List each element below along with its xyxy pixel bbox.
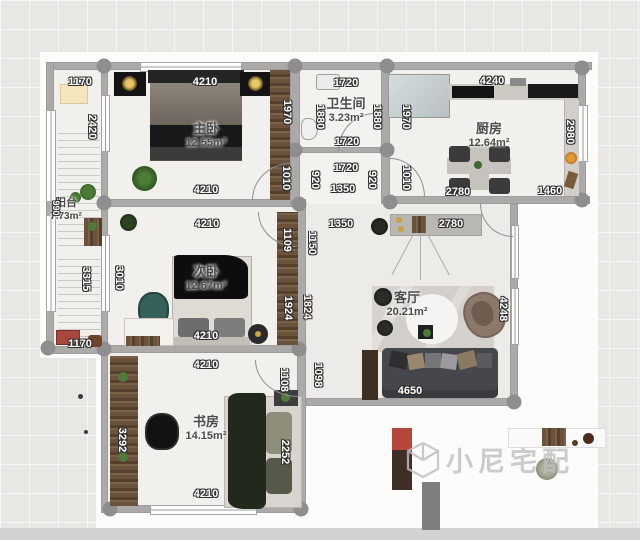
light-ray-2 bbox=[420, 236, 421, 280]
room-area: 12.64m² bbox=[469, 137, 510, 151]
room-name: 书房 bbox=[186, 414, 227, 430]
sofa-pillow-4 bbox=[440, 353, 458, 370]
deco-shelf-bowl bbox=[583, 433, 594, 444]
bottom-shadow-strip bbox=[0, 528, 640, 540]
dimension-label: 1010 bbox=[400, 166, 412, 190]
room-area: 14.15m² bbox=[186, 430, 227, 444]
dimension-label: 920 bbox=[366, 171, 378, 189]
second-dresser bbox=[126, 336, 160, 346]
dimension-label: 1460 bbox=[538, 185, 562, 197]
dimension-label: 4210 bbox=[194, 488, 218, 500]
dimension-label: 4210 bbox=[193, 76, 217, 88]
wall bbox=[306, 398, 518, 406]
dimension-label: 1150 bbox=[306, 231, 318, 255]
dimension-label: 2420 bbox=[86, 115, 98, 139]
wall bbox=[101, 199, 306, 207]
wall-corner-post bbox=[41, 341, 56, 356]
dimension-label: 3292 bbox=[116, 428, 128, 452]
living-plant-1 bbox=[371, 218, 388, 235]
kitchen-sink-icon bbox=[528, 84, 578, 98]
dimension-label: 4248 bbox=[497, 297, 509, 321]
second-bed-pillow-2 bbox=[214, 318, 245, 337]
dimension-label: 1109 bbox=[281, 228, 293, 252]
room-name: 厨房 bbox=[469, 121, 510, 137]
floor-plan-canvas: 1170421017204240172017201350278014604210… bbox=[0, 0, 640, 540]
dining-chair-4 bbox=[489, 178, 510, 194]
window bbox=[511, 288, 519, 345]
dimension-label: 1170 bbox=[68, 76, 92, 88]
wall bbox=[101, 345, 306, 353]
kitchen-glass-counter bbox=[388, 74, 450, 118]
watermark: 小尼宅配 bbox=[406, 440, 574, 479]
dimension-label: 1010 bbox=[280, 166, 292, 190]
tv-cabinet bbox=[362, 350, 378, 400]
dimension-label: 2980 bbox=[564, 120, 576, 144]
wall-corner-post bbox=[292, 197, 307, 212]
room-label: 客厅20.21m² bbox=[387, 290, 428, 320]
watermark-text: 小尼宅配 bbox=[446, 440, 574, 479]
wall-corner-post bbox=[575, 61, 590, 76]
room-label: 卫生间3.23m² bbox=[326, 96, 365, 126]
window bbox=[46, 110, 56, 202]
dimension-label: 1970 bbox=[281, 100, 293, 124]
balcony-rack-texture2 bbox=[58, 255, 100, 337]
wall-corner-post bbox=[507, 395, 522, 410]
room-label: 厨房12.64m² bbox=[469, 121, 510, 151]
sofa-pillow-3 bbox=[425, 353, 441, 368]
room-area: 12.67m² bbox=[186, 280, 227, 294]
dimension-label: 990 bbox=[51, 200, 61, 215]
dimension-label: 4240 bbox=[480, 75, 504, 87]
fruit-bowl-icon bbox=[565, 152, 577, 164]
dimension-label: 2252 bbox=[279, 440, 291, 464]
deco-gray-panel bbox=[422, 482, 440, 530]
dimension-label: 1108 bbox=[278, 368, 290, 392]
wall-corner-post bbox=[97, 59, 112, 74]
window bbox=[46, 215, 56, 312]
dimension-label: 4650 bbox=[398, 385, 422, 397]
dimension-label: 1350 bbox=[331, 183, 355, 195]
wall-corner-post bbox=[380, 59, 395, 74]
kitchen-hood-icon bbox=[510, 78, 526, 86]
dimension-label: 1824 bbox=[301, 295, 313, 319]
watermark-cube-icon bbox=[406, 441, 440, 479]
wall bbox=[46, 62, 592, 70]
study-bed-blanket bbox=[228, 393, 266, 509]
dimension-label: 4210 bbox=[194, 359, 218, 371]
dining-chair-1 bbox=[449, 146, 470, 162]
wall-corner-post bbox=[97, 196, 112, 211]
sofa-pillow-2 bbox=[407, 353, 425, 371]
wall bbox=[101, 346, 108, 513]
dimension-label: 1924 bbox=[282, 296, 294, 320]
side-table-dot bbox=[255, 331, 261, 337]
kitchen-stove-icon bbox=[452, 86, 494, 98]
dimension-label: 4210 bbox=[194, 330, 218, 342]
dimension-label: 2780 bbox=[446, 186, 470, 198]
dimension-label: 1350 bbox=[329, 218, 353, 230]
room-label: 主卧12.55m² bbox=[186, 121, 227, 151]
wall bbox=[381, 196, 590, 204]
dimension-label: 1098 bbox=[312, 363, 324, 387]
entry-cabinet-box bbox=[412, 216, 426, 233]
study-wardrobe-plant2 bbox=[118, 452, 128, 462]
room-label: 书房14.15m² bbox=[186, 414, 227, 444]
dimension-label: 1170 bbox=[68, 338, 92, 350]
speck-2 bbox=[84, 430, 88, 434]
room-area: 3.23m² bbox=[326, 112, 365, 126]
dimension-label: 1970 bbox=[400, 105, 412, 129]
dimension-label: 4210 bbox=[194, 184, 218, 196]
dimension-label: 920 bbox=[309, 171, 321, 189]
room-name: 客厅 bbox=[387, 290, 428, 306]
dimension-label: 1720 bbox=[334, 77, 358, 89]
room-name: 主卧 bbox=[186, 121, 227, 137]
entry-deco-dot1 bbox=[396, 217, 402, 223]
lamp-right-icon bbox=[248, 76, 263, 91]
window bbox=[578, 105, 588, 162]
dimension-label: 1880 bbox=[371, 105, 383, 129]
room-name: 次卧 bbox=[186, 264, 227, 280]
sofa-pillow-1 bbox=[389, 350, 410, 369]
wall bbox=[297, 204, 306, 353]
room-label: 次卧12.67m² bbox=[186, 264, 227, 294]
lamp-left-icon bbox=[122, 76, 137, 91]
window bbox=[101, 235, 110, 312]
entry-deco-dot2 bbox=[398, 226, 404, 232]
room-area: 12.55m² bbox=[186, 137, 227, 151]
coffee-table-plant-icon bbox=[423, 329, 431, 337]
dimension-label: 1880 bbox=[314, 105, 326, 129]
dimension-label: 1720 bbox=[335, 136, 359, 148]
dimension-label: 3010 bbox=[113, 266, 125, 290]
balcony-shelf-plant bbox=[88, 222, 97, 231]
wall-corner-post bbox=[380, 143, 395, 158]
balcony-plant-1 bbox=[80, 184, 96, 200]
speck-1 bbox=[78, 394, 83, 399]
office-chair-icon bbox=[145, 413, 179, 450]
dimension-label: 2780 bbox=[439, 218, 463, 230]
table-plant-icon bbox=[474, 161, 482, 169]
entry-cabinet bbox=[390, 214, 482, 236]
dimension-label: 3315 bbox=[80, 267, 92, 291]
sofa-pillow-6 bbox=[477, 353, 492, 368]
dimension-label: 1720 bbox=[334, 162, 358, 174]
dimension-label: 4210 bbox=[195, 218, 219, 230]
room-name: 卫生间 bbox=[326, 96, 365, 112]
second-plant-icon bbox=[120, 214, 137, 231]
study-wardrobe-plant bbox=[118, 372, 128, 382]
master-plant-icon bbox=[132, 166, 157, 191]
window bbox=[101, 95, 110, 152]
room-area: 20.21m² bbox=[387, 306, 428, 320]
living-plant-3 bbox=[377, 320, 393, 336]
